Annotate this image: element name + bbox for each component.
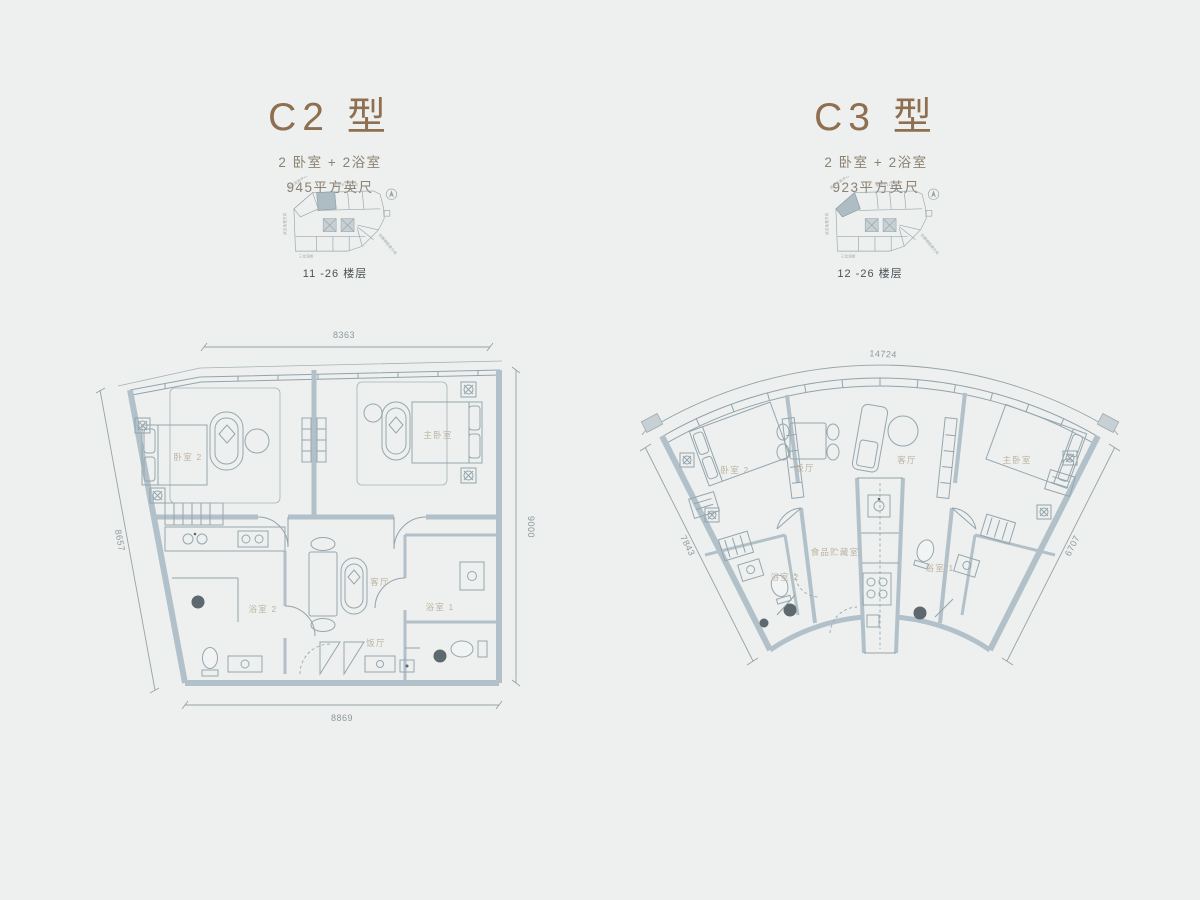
room-label-bath2: 浴室 2 (249, 604, 278, 614)
room-label-bath1: 浴室 1 (926, 563, 955, 573)
dim-left: 7843 (678, 534, 697, 558)
key-plan-label-topleft: 国际贸易中心方向 (829, 176, 857, 190)
column-marker (461, 468, 476, 483)
room-label-living: 客厅 (370, 577, 389, 587)
key-plan-highlight-c2 (317, 192, 337, 211)
key-plan-label-top: 默迪卡118方向 (875, 182, 900, 187)
master-bedroom: 主卧室 (980, 404, 1086, 543)
bedroom2: 卧室 2 (135, 388, 280, 503)
room-label-bedroom2: 卧室 2 (174, 452, 203, 462)
bathroom2: 浴室 2 (172, 578, 277, 676)
bathroom1: 浴室 1 (405, 562, 487, 663)
key-plan-c2: 国际贸易中心方向 默迪卡118方向 武吉免登方向 往精明隧道方向 三岔湾街 (276, 176, 398, 262)
key-plan-label-right: 往精明隧道方向 (378, 232, 398, 255)
dim-top: 14724 (869, 348, 897, 359)
room-label-pantry: 食品贮藏室 (811, 547, 860, 557)
master-bedroom: 主卧室 (357, 382, 482, 485)
key-plan-c3: 国际贸易中心方向 默迪卡118方向 武吉免登方向 往精明隧道方向 三岔湾街 (818, 176, 940, 262)
floorplan-sheet: C2 型 2 卧室 + 2浴室 945平方英尺 C3 型 2 卧室 + 2浴室 … (0, 0, 1200, 900)
floor-plan-c2: 8363 9000 8869 8657 (88, 322, 548, 732)
room-label-dining: 饭厅 (795, 463, 814, 473)
kitchen (165, 503, 285, 551)
key-plan-label-left: 武吉免登方向 (824, 212, 829, 235)
room-label-living: 客厅 (897, 455, 916, 465)
key-plan-label-top: 默迪卡118方向 (333, 182, 358, 187)
key-plan-label-topleft: 国际贸易中心方向 (287, 176, 315, 190)
column-marker (680, 453, 694, 467)
room-label-bath2: 浴室 2 (771, 572, 800, 582)
dim-top: 8363 (333, 330, 355, 340)
unit-c3-floors: 12 -26 楼层 (690, 265, 1050, 281)
key-plan-label-right: 往精明隧道方向 (920, 232, 940, 255)
floor-plan-c3: 14724 7843 6707 (635, 323, 1125, 683)
room-label-bedroom2: 卧室 2 (721, 465, 750, 475)
dim-right: 9000 (526, 516, 536, 538)
dim-right: 6707 (1063, 534, 1082, 558)
dining: 饭厅 (777, 423, 839, 473)
key-plan-label-bottom: 三岔湾街 (841, 254, 856, 259)
unit-c3-title: C3 型 (696, 86, 1056, 142)
room-label-dining: 饭厅 (366, 638, 385, 648)
dim-bottom: 8869 (331, 713, 353, 723)
key-plan-label-bottom: 三岔湾街 (299, 254, 314, 259)
outer-walls (118, 361, 502, 683)
room-label-master: 主卧室 (1002, 455, 1031, 465)
dim-left: 8657 (113, 529, 127, 553)
unit-c2-config: 2 卧室 + 2浴室 (150, 151, 510, 171)
column-marker (1037, 505, 1051, 519)
living-dining: 客厅 饭厅 (309, 538, 414, 675)
room-label-master: 主卧室 (423, 430, 452, 440)
key-plan-highlight-c3 (836, 193, 860, 217)
key-plan-site (836, 189, 939, 251)
key-plan-label-left: 武吉免登方向 (282, 212, 287, 235)
unit-c2-floors: 11 -26 楼层 (155, 265, 515, 281)
unit-c3-config: 2 卧室 + 2浴室 (696, 151, 1056, 171)
unit-c2-title: C2 型 (150, 86, 510, 142)
living: 客厅 (851, 403, 918, 473)
room-label-bath1: 浴室 1 (426, 602, 455, 612)
key-plan-site (294, 189, 397, 251)
column-marker (461, 382, 476, 397)
